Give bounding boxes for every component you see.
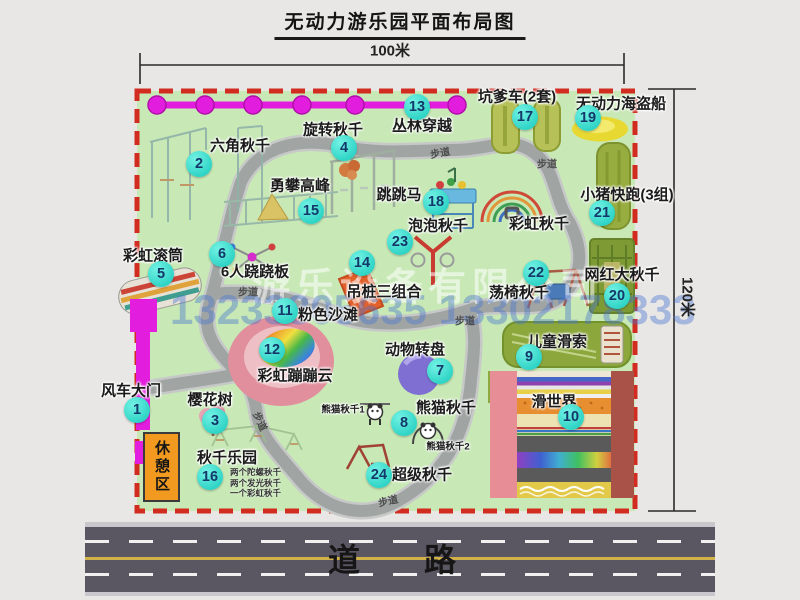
attraction-badge-18: 18 [423, 189, 449, 215]
attraction-badge-24: 24 [366, 462, 392, 488]
swing-paradise-note-2: 一个彩虹秋千 [230, 489, 281, 498]
attraction-label-18: 跳跳马 [376, 188, 421, 203]
attraction-badge-5: 5 [148, 261, 174, 287]
attraction-label-13: 丛林穿越 [392, 119, 452, 134]
extra-label-1: 熊猫秋千1 [321, 405, 364, 415]
attraction-label-24: 超级秋千 [392, 468, 452, 483]
attraction-label-14: 吊桩三组合 [346, 285, 421, 300]
attraction-badge-22: 22 [523, 260, 549, 286]
attraction-badge-4: 4 [331, 135, 357, 161]
attraction-badge-13: 13 [404, 94, 430, 120]
attraction-badge-11: 11 [272, 298, 298, 324]
attraction-label-1: 风车大门 [101, 384, 161, 399]
attraction-label-6: 6人跷跷板 [221, 265, 289, 280]
attraction-label-23: 泡泡秋千 [408, 219, 468, 234]
attraction-label-4: 旋转秋千 [303, 123, 363, 138]
footpath-label-0: 步道 [429, 143, 451, 161]
extra-label-2: 熊猫秋千2 [426, 442, 469, 452]
swing-paradise-note-0: 两个陀螺秋千 [230, 468, 281, 477]
attraction-badge-17: 17 [512, 104, 538, 130]
attraction-label-5: 彩虹滚筒 [123, 249, 183, 264]
site-plan-stage: 无动力游乐园平面布局图 100米 120米 [0, 0, 800, 600]
extra-label-0: 彩虹秋千 [509, 217, 569, 232]
attraction-label-16: 秋千乐园 [197, 451, 257, 466]
attraction-badge-20: 20 [604, 283, 630, 309]
attraction-label-12: 彩虹蹦蹦云 [257, 369, 332, 384]
attraction-badge-8: 8 [391, 410, 417, 436]
attraction-badge-2: 2 [186, 151, 212, 177]
footpath-label-5: 步道 [377, 491, 400, 510]
attraction-label-2: 六角秋千 [210, 139, 270, 154]
attraction-badge-7: 7 [427, 358, 453, 384]
footpath-label-4: 步道 [250, 409, 272, 433]
attraction-label-3: 樱花树 [187, 393, 232, 408]
attraction-badge-6: 6 [209, 241, 235, 267]
attraction-badge-16: 16 [197, 464, 223, 490]
attraction-label-22: 荡椅秋千 [489, 286, 549, 301]
attraction-badge-21: 21 [589, 200, 615, 226]
attraction-label-17: 坑爹车(2套) [478, 90, 556, 105]
attraction-badge-19: 19 [575, 105, 601, 131]
footpath-label-3: 步道 [455, 313, 475, 328]
attraction-badge-14: 14 [349, 250, 375, 276]
attraction-label-21: 小猪快跑(3组) [580, 188, 673, 203]
attraction-badge-10: 10 [558, 404, 584, 430]
swing-paradise-note-1: 两个发光秋千 [230, 479, 281, 488]
attraction-badge-1: 1 [124, 397, 150, 423]
attraction-badge-9: 9 [516, 344, 542, 370]
height-dimension-label: 120米 [678, 277, 699, 317]
footpath-label-1: 步道 [537, 156, 557, 171]
attraction-label-8: 熊猫秋千 [416, 401, 476, 416]
width-dimension-label: 100米 [370, 40, 410, 61]
attraction-badge-12: 12 [259, 337, 285, 363]
page-title: 无动力游乐园平面布局图 [274, 7, 525, 40]
attraction-label-20: 网红大秋千 [584, 268, 659, 283]
attraction-badge-3: 3 [202, 408, 228, 434]
attraction-label-11: 粉色沙滩 [298, 308, 358, 323]
attraction-label-15: 勇攀高峰 [270, 179, 330, 194]
attraction-badge-23: 23 [387, 229, 413, 255]
attraction-badge-15: 15 [298, 198, 324, 224]
attraction-label-7: 动物转盘 [385, 343, 445, 358]
footpath-label-2: 步道 [238, 284, 258, 299]
